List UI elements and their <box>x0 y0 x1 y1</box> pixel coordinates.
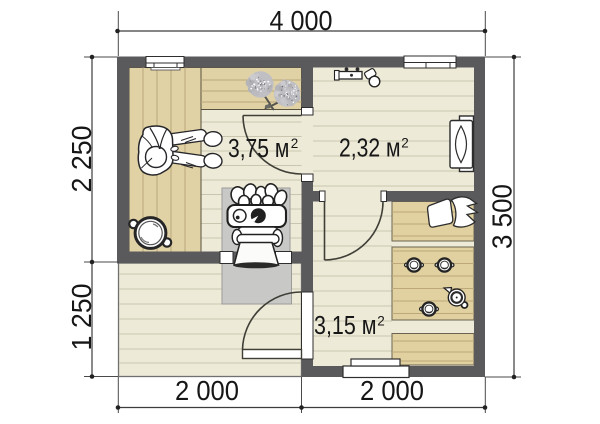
svg-text:2: 2 <box>401 136 409 151</box>
svg-text:2 000: 2 000 <box>175 375 239 406</box>
svg-text:2,32 м: 2,32 м <box>339 135 401 163</box>
svg-text:2 000: 2 000 <box>360 375 424 406</box>
svg-text:3,15 м: 3,15 м <box>314 312 377 340</box>
svg-text:3,75 м: 3,75 м <box>228 135 289 163</box>
svg-text:4 000: 4 000 <box>270 5 333 36</box>
svg-text:2: 2 <box>377 314 385 329</box>
svg-text:2 250: 2 250 <box>66 126 97 193</box>
svg-text:3 500: 3 500 <box>487 184 518 249</box>
svg-text:1 250: 1 250 <box>66 284 97 351</box>
svg-text:2: 2 <box>291 136 299 151</box>
